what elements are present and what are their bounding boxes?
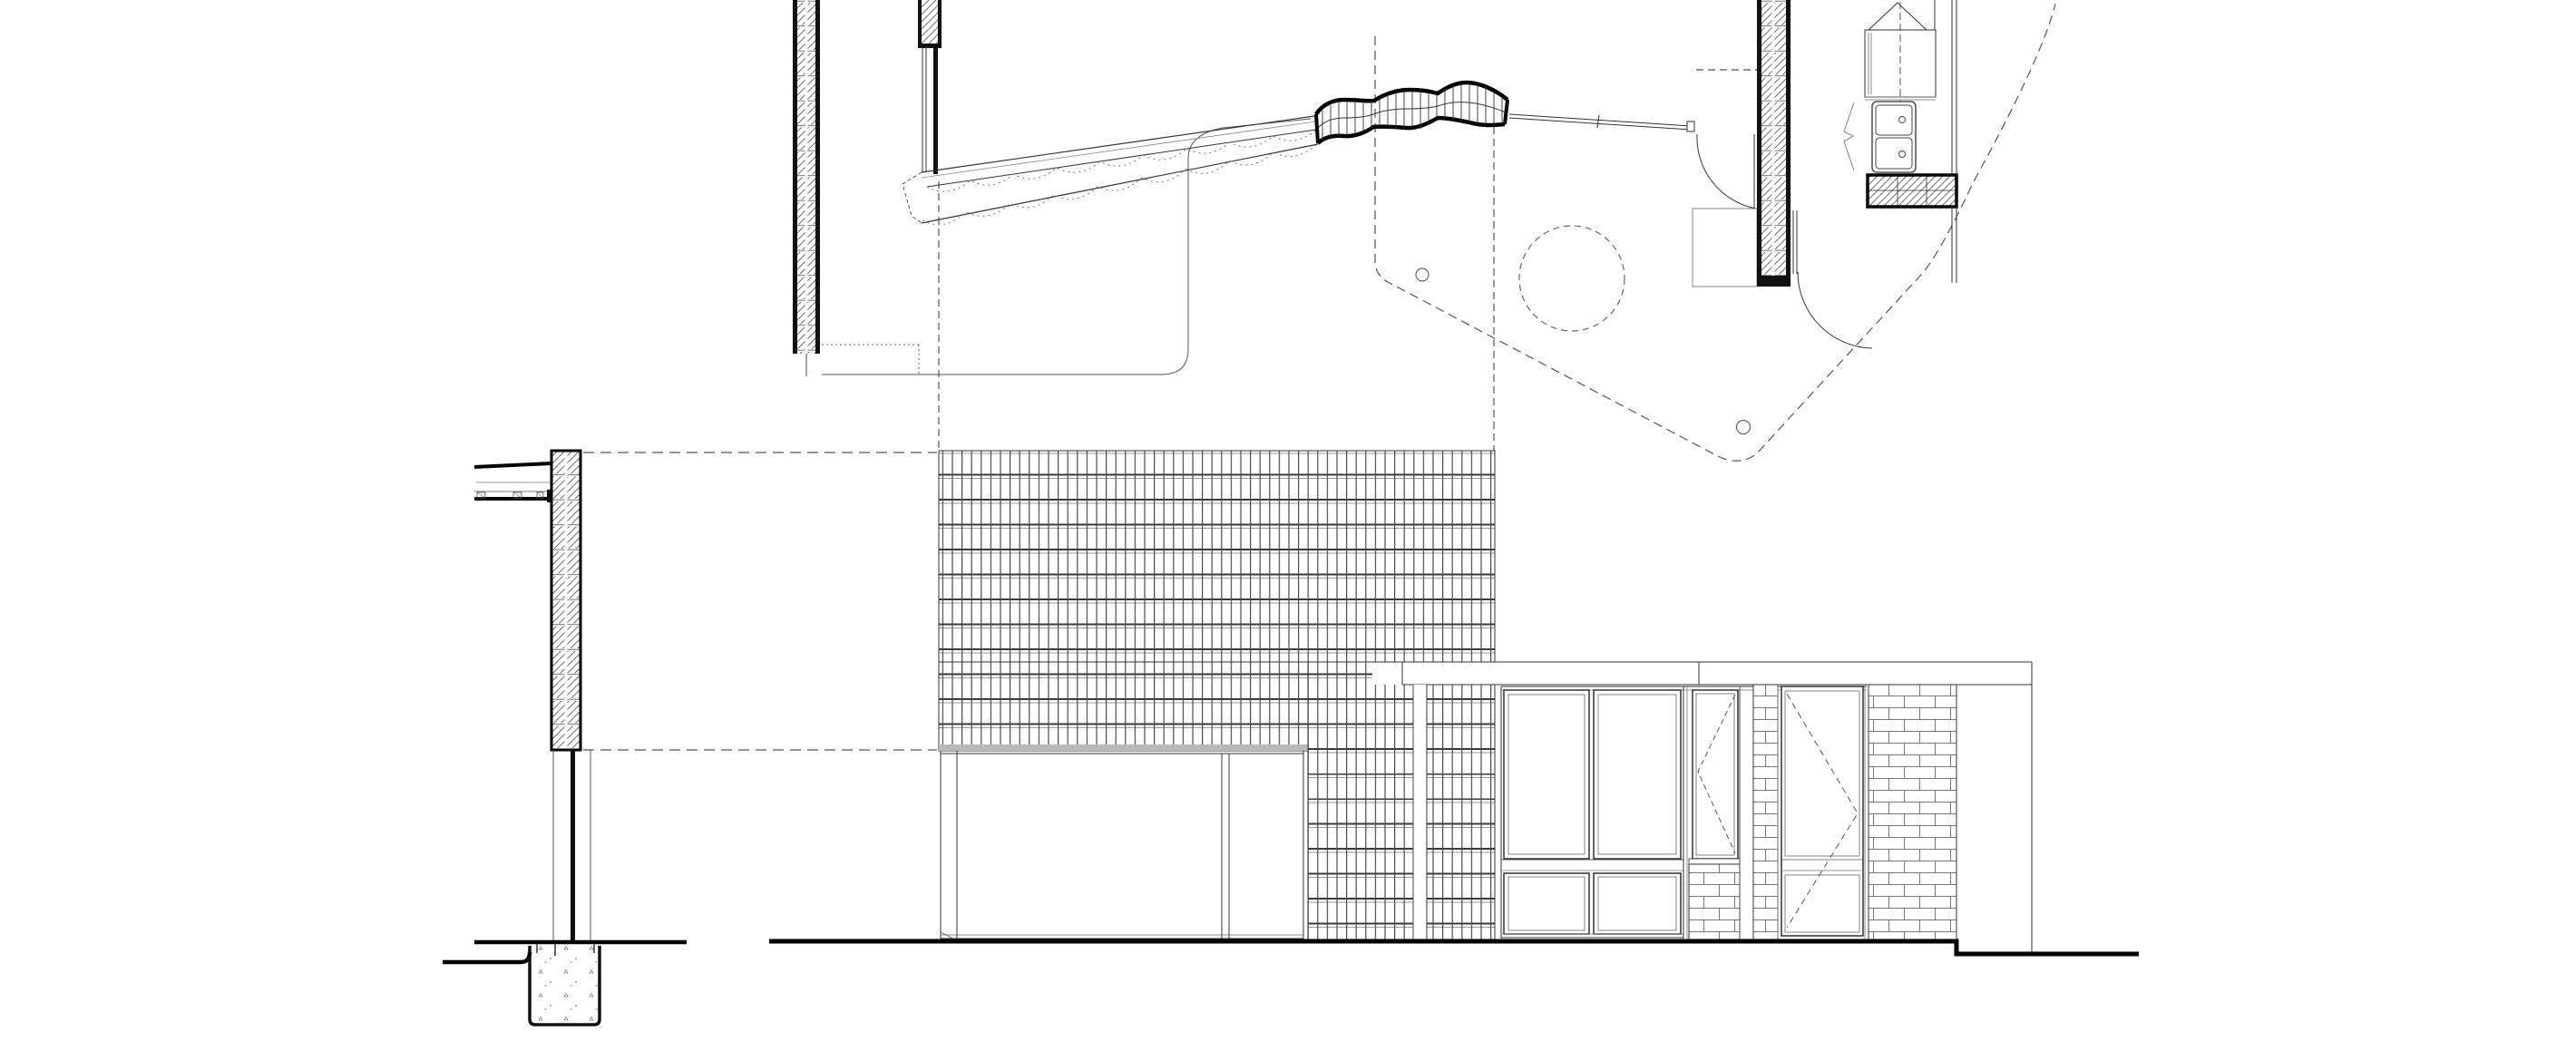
plan-post-circle-small bbox=[1416, 268, 1429, 281]
elevation-brick-under-casement bbox=[1689, 864, 1740, 940]
plan-canopy-scallops-row1 bbox=[927, 130, 1316, 191]
section-ground-line-lower bbox=[443, 952, 530, 962]
plan-railing-hinge-block bbox=[1687, 122, 1694, 131]
plan-dashed-canopy-outline bbox=[1375, 4, 2055, 461]
plan-tree-circle bbox=[1519, 226, 1625, 331]
elevation-facade-tiles-lower bbox=[939, 662, 1308, 751]
plan-wall2-edge-right bbox=[1786, 0, 1791, 287]
elevation-brick-wall bbox=[1869, 685, 1956, 940]
elevation-mullion-gap bbox=[1413, 685, 1427, 940]
plan-wall1-edge-right bbox=[815, 0, 820, 354]
section-roof-slab bbox=[474, 463, 551, 467]
plan-canopy-left-cap-dashed bbox=[903, 172, 922, 223]
plan-canopy-top-edge-inner bbox=[922, 122, 1315, 178]
plan-sink-outer bbox=[1872, 102, 1916, 172]
plan-wallstub-cap bbox=[918, 44, 942, 48]
drawing-sheet bbox=[0, 0, 2576, 1041]
elevation-facade-tiles-upper bbox=[939, 451, 1495, 662]
plan-pier-hatch bbox=[1868, 175, 1956, 207]
plan-window-frame-glass bbox=[933, 47, 938, 174]
plan-wall2-edge-left bbox=[1757, 0, 1761, 287]
elevation-door-outer bbox=[1781, 686, 1863, 936]
plan-brick-wave-cap-right bbox=[1505, 100, 1508, 124]
plan-canopy-bottom-edge bbox=[922, 144, 1318, 223]
elevation-ground-line bbox=[769, 941, 2139, 954]
plan-wall1-edge-left bbox=[793, 0, 797, 354]
plan-canopy-mid-edge bbox=[927, 130, 1316, 187]
plan-brick-wave-voussoirs bbox=[1322, 83, 1502, 141]
elevation-casement-sill bbox=[1689, 859, 1740, 864]
plan-canopy-top-edge bbox=[922, 116, 1314, 172]
elevation-casement-outer bbox=[1693, 690, 1738, 859]
elevation-sliding-b-upper-outer bbox=[1594, 690, 1681, 859]
plan-door1-swing-arc bbox=[1697, 134, 1756, 209]
plan-kitchen-triangle bbox=[1869, 3, 1927, 30]
plan-post-circle-small-2 bbox=[1737, 421, 1751, 434]
elevation-fascia-band bbox=[1372, 662, 2032, 685]
plan-brick-wave-bottom bbox=[1318, 118, 1505, 143]
elevation-brick-pier bbox=[1753, 685, 1778, 940]
plan-railing-joint bbox=[1597, 115, 1599, 128]
plan-door2-swing-arc bbox=[1798, 272, 1872, 348]
elevation-facade-bottom-band bbox=[939, 744, 1308, 751]
architectural-drawing bbox=[0, 0, 2576, 1041]
plan-railing-line-2 bbox=[1509, 118, 1691, 130]
elevation-sliding-a-upper-outer bbox=[1504, 690, 1589, 859]
plan-wall2-cap bbox=[1757, 276, 1791, 287]
plan-threshold-rect bbox=[1693, 209, 1757, 287]
plan-railing-line-1 bbox=[1509, 114, 1691, 126]
elevation-sliding-b-lower-outer bbox=[1594, 873, 1681, 934]
plan-brick-wave-cap-left bbox=[1316, 114, 1318, 143]
plan-wallstub-edge-right bbox=[938, 0, 942, 47]
elevation-tile-bay-b bbox=[1427, 685, 1495, 940]
plan-brick-wave-top bbox=[1316, 83, 1508, 114]
section-footing-concrete bbox=[530, 946, 600, 1025]
plan-wallstub-edge-left bbox=[918, 0, 922, 47]
elevation-sliding-a-lower-outer bbox=[1504, 873, 1589, 934]
section-mullion-glass bbox=[571, 750, 575, 941]
elevation-tile-bay-a bbox=[1308, 662, 1413, 940]
plan-sink-break-zigzag bbox=[1844, 102, 1854, 170]
